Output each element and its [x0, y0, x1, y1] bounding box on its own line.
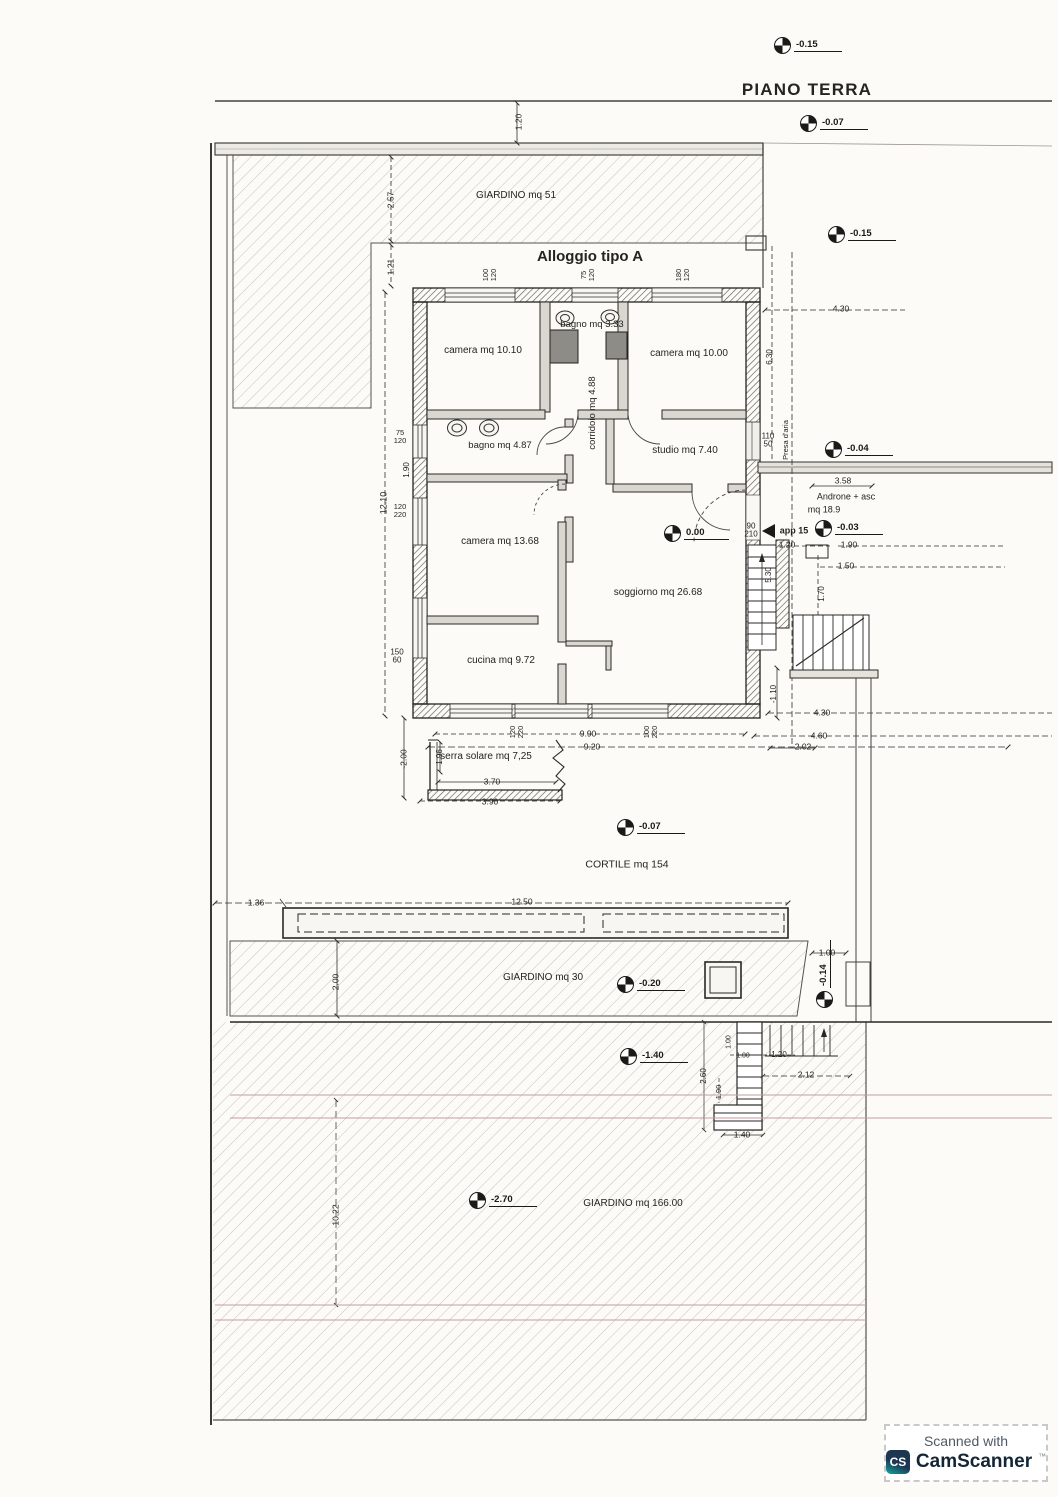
- benchmark-icon: [828, 226, 845, 243]
- dim: 2.00: [332, 974, 341, 991]
- dim-window: 120 220: [394, 503, 407, 519]
- room-soggiorno: soggiorno mq 26.68: [614, 588, 702, 599]
- elevation-value: -0.07: [637, 821, 685, 834]
- elevation-marker: -0.15: [774, 37, 842, 54]
- room-serra-solare: serra solare mq 7,25: [440, 752, 532, 763]
- dim: 1.90: [403, 462, 411, 478]
- benchmark-icon: [816, 991, 833, 1008]
- benchmark-icon: [469, 1192, 486, 1209]
- dim: 3.58: [835, 477, 852, 486]
- dim: 2.02: [795, 743, 812, 752]
- dim: 1.00: [725, 1035, 732, 1049]
- scanned-floor-plan-page: PIANO TERRAAlloggio tipo AGIARDINO mq 51…: [0, 0, 1058, 1497]
- elevation-value: -0.15: [848, 228, 896, 241]
- benchmark-icon: [617, 819, 634, 836]
- benchmark-icon: [815, 520, 832, 537]
- benchmark-icon: [825, 441, 842, 458]
- elevation-marker: -0.04: [825, 441, 893, 458]
- dim: 1.40: [734, 1131, 751, 1140]
- elevation-marker: 0.00: [664, 525, 729, 542]
- area-cortile: CORTILE mq 154: [585, 859, 668, 870]
- dim: 1.36: [248, 899, 265, 908]
- dim: 1.90: [841, 541, 858, 550]
- dim: 3.70: [484, 778, 501, 787]
- plan-title: Alloggio tipo A: [537, 249, 643, 265]
- room-corridoio: corridoio mq 4.88: [588, 376, 598, 449]
- dim: 10.22: [332, 1204, 341, 1225]
- elevation-marker: -1.40: [620, 1048, 688, 1065]
- dim: 2.12: [798, 1071, 815, 1080]
- room-androne: Androne + asc: [817, 492, 875, 501]
- dim: 5.30: [765, 567, 773, 583]
- trademark-symbol: ™: [1038, 1452, 1046, 1461]
- dim: 2.60: [700, 1068, 708, 1084]
- label-app-15: app 15: [780, 526, 809, 535]
- elevation-value: -1.40: [640, 1050, 688, 1063]
- dim: 12.50: [511, 898, 532, 907]
- dim-window: 75 120: [580, 269, 596, 282]
- elevation-marker: -0.03: [815, 520, 883, 537]
- dim: 2.57: [387, 192, 396, 209]
- dim: 9.90: [580, 730, 597, 739]
- room-studio: studio mq 7.40: [652, 446, 718, 457]
- dim: 6.30: [766, 349, 774, 365]
- dim: 4.60: [811, 732, 828, 741]
- dim: 4.30: [833, 305, 850, 314]
- elevation-marker: -0.15: [828, 226, 896, 243]
- benchmark-icon: [800, 115, 817, 132]
- dim: 1.90: [715, 1085, 723, 1100]
- dim: 1.20: [515, 114, 524, 131]
- area-giardino-166: GIARDINO mq 166.00: [583, 1199, 682, 1210]
- dim-window: 180 120: [675, 269, 691, 282]
- benchmark-icon: [620, 1048, 637, 1065]
- dim-window: 75 120: [394, 429, 407, 445]
- elevation-value: -0.20: [637, 978, 685, 991]
- watermark-prefix: Scanned with: [924, 1433, 1008, 1449]
- elevation-marker: -2.70: [469, 1192, 537, 1209]
- dim: 1.00: [736, 1052, 750, 1059]
- watermark-brand: CamScanner: [916, 1451, 1032, 1473]
- area-giardino-51: GIARDINO mq 51: [476, 191, 556, 202]
- watermark-brand-row: CS CamScanner ™: [886, 1450, 1046, 1474]
- elevation-marker: -0.07: [800, 115, 868, 132]
- room-bagno-1: bagno mq 3.33: [560, 320, 623, 330]
- elevation-value: -0.07: [820, 117, 868, 130]
- dim: -1.10: [770, 685, 778, 703]
- label-presa-aria: Presa d'aria: [782, 420, 790, 460]
- dim: 1.96: [436, 749, 444, 765]
- elevation-value: -0.04: [845, 443, 893, 456]
- elevation-value: -0.15: [794, 39, 842, 52]
- dim-window: 100 220: [643, 726, 659, 739]
- dim: 9.20: [584, 743, 601, 752]
- area-giardino-30: GIARDINO mq 30: [503, 973, 583, 984]
- room-androne-area: mq 18.9: [808, 505, 841, 514]
- floor-plan-drawing: [0, 0, 1058, 1497]
- dim: 1.20: [779, 541, 796, 550]
- dim-window: 120 220: [509, 726, 525, 739]
- dim-window: 100 120: [482, 269, 498, 282]
- elevation-marker: -0.20: [617, 976, 685, 993]
- room-cucina: cucina mq 9.72: [467, 656, 535, 667]
- camscanner-watermark: Scanned with CS CamScanner ™: [884, 1424, 1048, 1482]
- dim-door: 90 210: [744, 523, 757, 540]
- dim: 1.20: [771, 1051, 787, 1059]
- dim: 1.70: [818, 586, 826, 602]
- dim: 1.21: [387, 259, 396, 276]
- dim: 12.10: [379, 492, 388, 515]
- room-bagno-2: bagno mq 4.87: [468, 441, 531, 451]
- dim: 4.30: [814, 709, 831, 718]
- benchmark-icon: [664, 525, 681, 542]
- dim: 1.50: [838, 562, 855, 571]
- elevation-value: 0.00: [684, 527, 729, 540]
- dim-window: 150 60: [390, 649, 403, 666]
- elevation-value: -2.70: [489, 1194, 537, 1207]
- room-camera-2: camera mq 10.00: [650, 349, 728, 360]
- elevation-marker: -0.14: [816, 940, 833, 1008]
- dim-window: 110 50: [762, 433, 775, 450]
- elevation-value: -0.03: [835, 522, 883, 535]
- room-camera-1: camera mq 10.10: [444, 346, 522, 357]
- dim: 3.90: [482, 798, 499, 807]
- page-title: PIANO TERRA: [742, 81, 872, 99]
- room-camera-3: camera mq 13.68: [461, 537, 539, 548]
- dim: -2.00: [400, 749, 409, 768]
- elevation-value: -0.14: [818, 940, 831, 988]
- benchmark-icon: [774, 37, 791, 54]
- elevation-marker: -0.07: [617, 819, 685, 836]
- benchmark-icon: [617, 976, 634, 993]
- camscanner-logo-icon: CS: [886, 1450, 910, 1474]
